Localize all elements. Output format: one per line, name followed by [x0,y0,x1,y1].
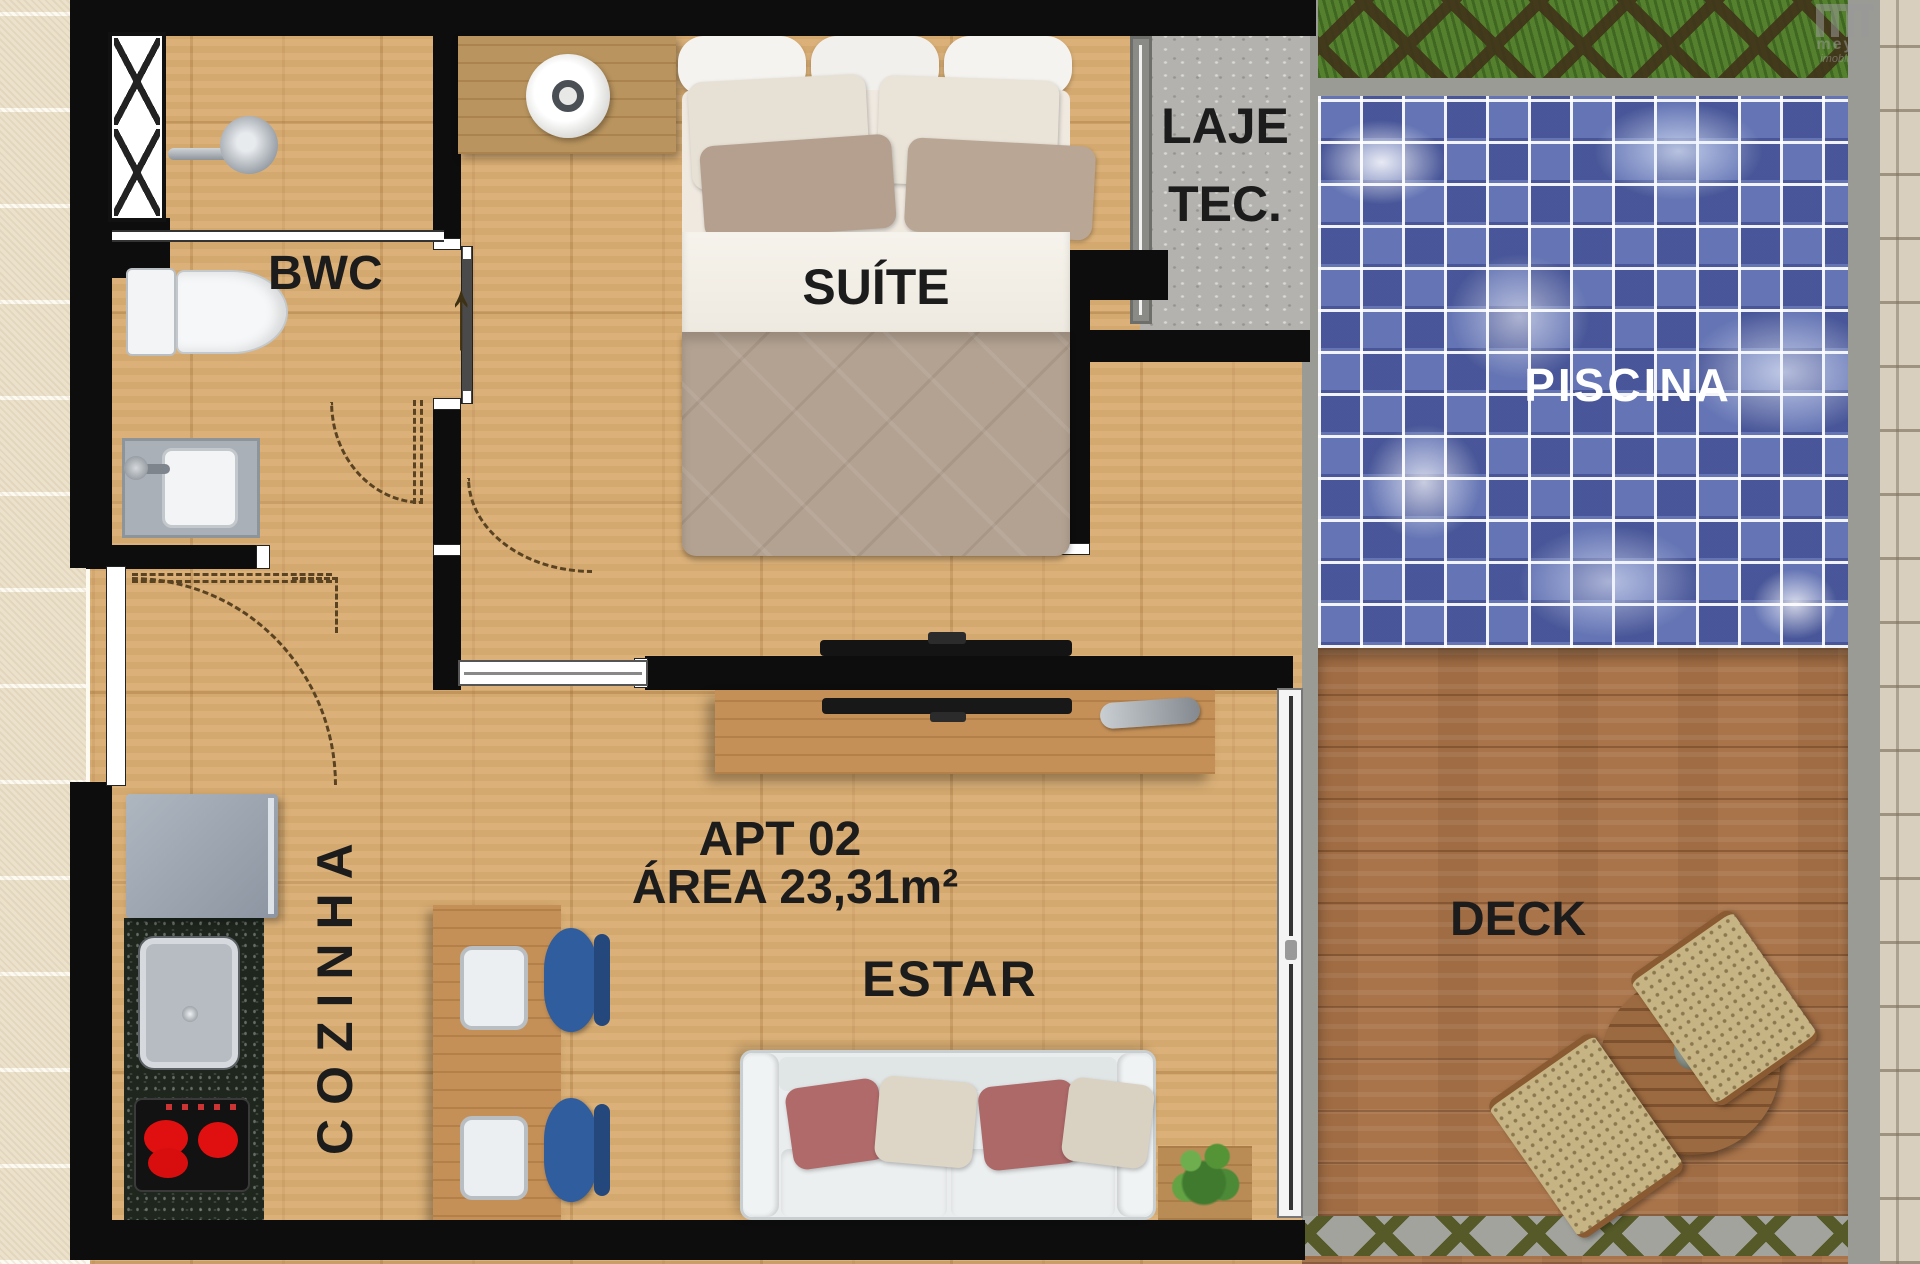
living-tv-mount [930,712,966,722]
laje-label-line1: LAJE [1140,88,1310,166]
place-setting-plate [460,1116,528,1200]
shower-head-icon [220,116,278,174]
dining-chair-back [594,1104,610,1196]
bwc-glass-partition [112,230,444,242]
potted-plant-icon [1160,1130,1248,1218]
entry-arrow: ↑ [448,256,474,372]
wall-bwc-right-upper [433,36,461,250]
bed-pillow-taupe [904,137,1097,241]
wall-suite-living-divider [645,656,1293,690]
shower-glass-x-icon [114,129,160,216]
sofa-pillow-rose [784,1077,888,1171]
bathroom-vanity [122,438,260,538]
sliding-track-line [464,672,642,675]
grass-strip [1318,0,1848,78]
shower-glass-x-icon [114,38,160,125]
wall-bottom [70,1220,1305,1260]
sofa [740,1050,1156,1220]
glass-door-line [1289,696,1293,936]
corner-marker [292,577,338,633]
watermark-tagline: imobiliária [1790,53,1900,65]
suite-door-swing-arc [467,478,592,573]
wall-left-upper [70,0,112,568]
sink-drain-icon [182,1006,198,1022]
wall-cap [256,545,270,569]
laje-bottom-wall [1090,330,1310,362]
dining-chair-blue [544,1098,598,1202]
kitchen-sink [140,938,238,1068]
deck-label: DECK [1450,892,1586,947]
bed-duvet [682,332,1070,556]
wall-cap [433,544,461,556]
wall-top [70,0,1316,36]
pool-label: PISCINA [1438,358,1818,412]
deck-bottom-sliver [1302,1256,1848,1264]
burner-icon [198,1122,238,1158]
living-label: ESTAR [862,950,1038,1008]
suite-label: SUÍTE [682,258,1070,316]
faucet-knob-icon [124,456,148,480]
sofa-armrest [743,1053,779,1217]
garden-trellis [1318,0,1848,78]
dining-chair-back [594,934,610,1026]
wall-cap [433,398,461,410]
suite-tv-mount [928,632,966,644]
sofa-pillow-cream [1060,1076,1156,1170]
laje-label-line2: TEC. [1140,166,1310,244]
pocket-door-cap [463,391,471,403]
glass-door-line [1289,964,1293,1210]
table-lamp-icon [526,54,610,138]
kitchen-label: COZINHA [306,732,370,1252]
laje-tec-label: LAJE TEC. [1140,88,1310,243]
toilet-tank [126,268,176,356]
dining-chair-blue [544,928,598,1032]
sofa-pillow-cream [873,1075,978,1169]
wall-suite-corner-stub [1060,250,1168,300]
apartment-area-label: ÁREA 23,31m² [560,860,1030,915]
refrigerator [126,794,278,918]
watermark-brand: meyer [1790,37,1900,53]
pool: PISCINA [1318,96,1848,648]
lamp-ring [552,80,584,112]
watermark-building-icon [1816,4,1874,37]
suite-sliding-door-track [458,660,648,686]
burner-icon [148,1148,188,1178]
watermark: meyer imobiliária [1790,4,1900,64]
place-setting-plate [460,946,528,1030]
bwc-label: BWC [268,246,383,301]
cooktop [136,1100,248,1190]
bed-pillow-taupe [699,133,897,240]
cooktop-knobs [166,1104,236,1110]
glass-door-handle [1285,940,1297,960]
refrigerator-edge [268,798,274,914]
vanity-basin [162,448,238,528]
wall-left-lower [70,782,112,1260]
deck-glass-door-track [1277,688,1303,1218]
floor-plan: PISCINA DECK LAJE TEC. [0,0,1920,1264]
bed: SUÍTE [678,36,1073,526]
stone-path-right [1880,0,1920,1264]
door-jamb-entry [106,566,126,786]
apartment-unit-label: APT 02 [600,812,960,867]
bwc-door-swing-arc [330,402,422,504]
shower-enclosure [108,32,166,222]
